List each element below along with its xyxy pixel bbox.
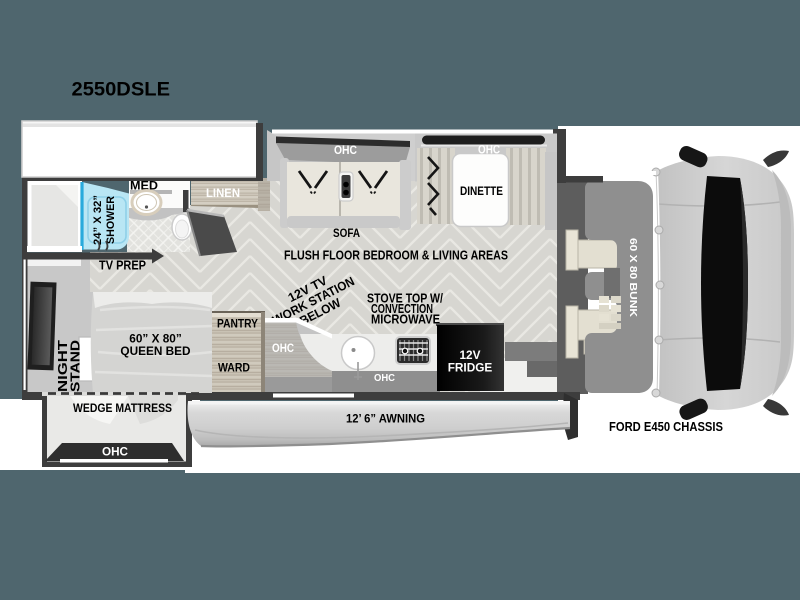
svg-text:MICROWAVE: MICROWAVE xyxy=(371,313,440,327)
svg-text:OHC: OHC xyxy=(102,447,128,459)
svg-text:60 X 80 BUNK: 60 X 80 BUNK xyxy=(627,238,639,317)
svg-text:24” X 32”: 24” X 32” xyxy=(92,195,104,245)
svg-text:SOFA: SOFA xyxy=(333,226,360,240)
svg-text:WEDGE MATTRESS: WEDGE MATTRESS xyxy=(73,403,172,415)
svg-text:WARD: WARD xyxy=(218,363,250,375)
svg-text:LINEN: LINEN xyxy=(206,188,240,200)
svg-text:OHC: OHC xyxy=(334,143,357,157)
svg-text:2550DSLE: 2550DSLE xyxy=(72,79,171,101)
svg-text:STAND: STAND xyxy=(69,340,83,392)
svg-text:DINETTE: DINETTE xyxy=(460,186,503,198)
svg-text:PANTRY: PANTRY xyxy=(217,319,258,331)
svg-text:QUEEN BED: QUEEN BED xyxy=(120,344,191,358)
svg-text:OHC: OHC xyxy=(478,145,500,157)
svg-text:FLUSH FLOOR BEDROOM & LIVING A: FLUSH FLOOR BEDROOM & LIVING AREAS xyxy=(284,248,508,263)
svg-text:12’ 6” AWNING: 12’ 6” AWNING xyxy=(346,412,425,426)
svg-text:FRIDGE: FRIDGE xyxy=(448,361,493,375)
svg-text:TV PREP: TV PREP xyxy=(99,259,146,273)
svg-text:FORD E450 CHASSIS: FORD E450 CHASSIS xyxy=(609,420,723,434)
svg-text:OHC: OHC xyxy=(374,372,395,384)
svg-text:SHOWER: SHOWER xyxy=(105,196,117,244)
svg-text:OHC: OHC xyxy=(272,341,294,355)
